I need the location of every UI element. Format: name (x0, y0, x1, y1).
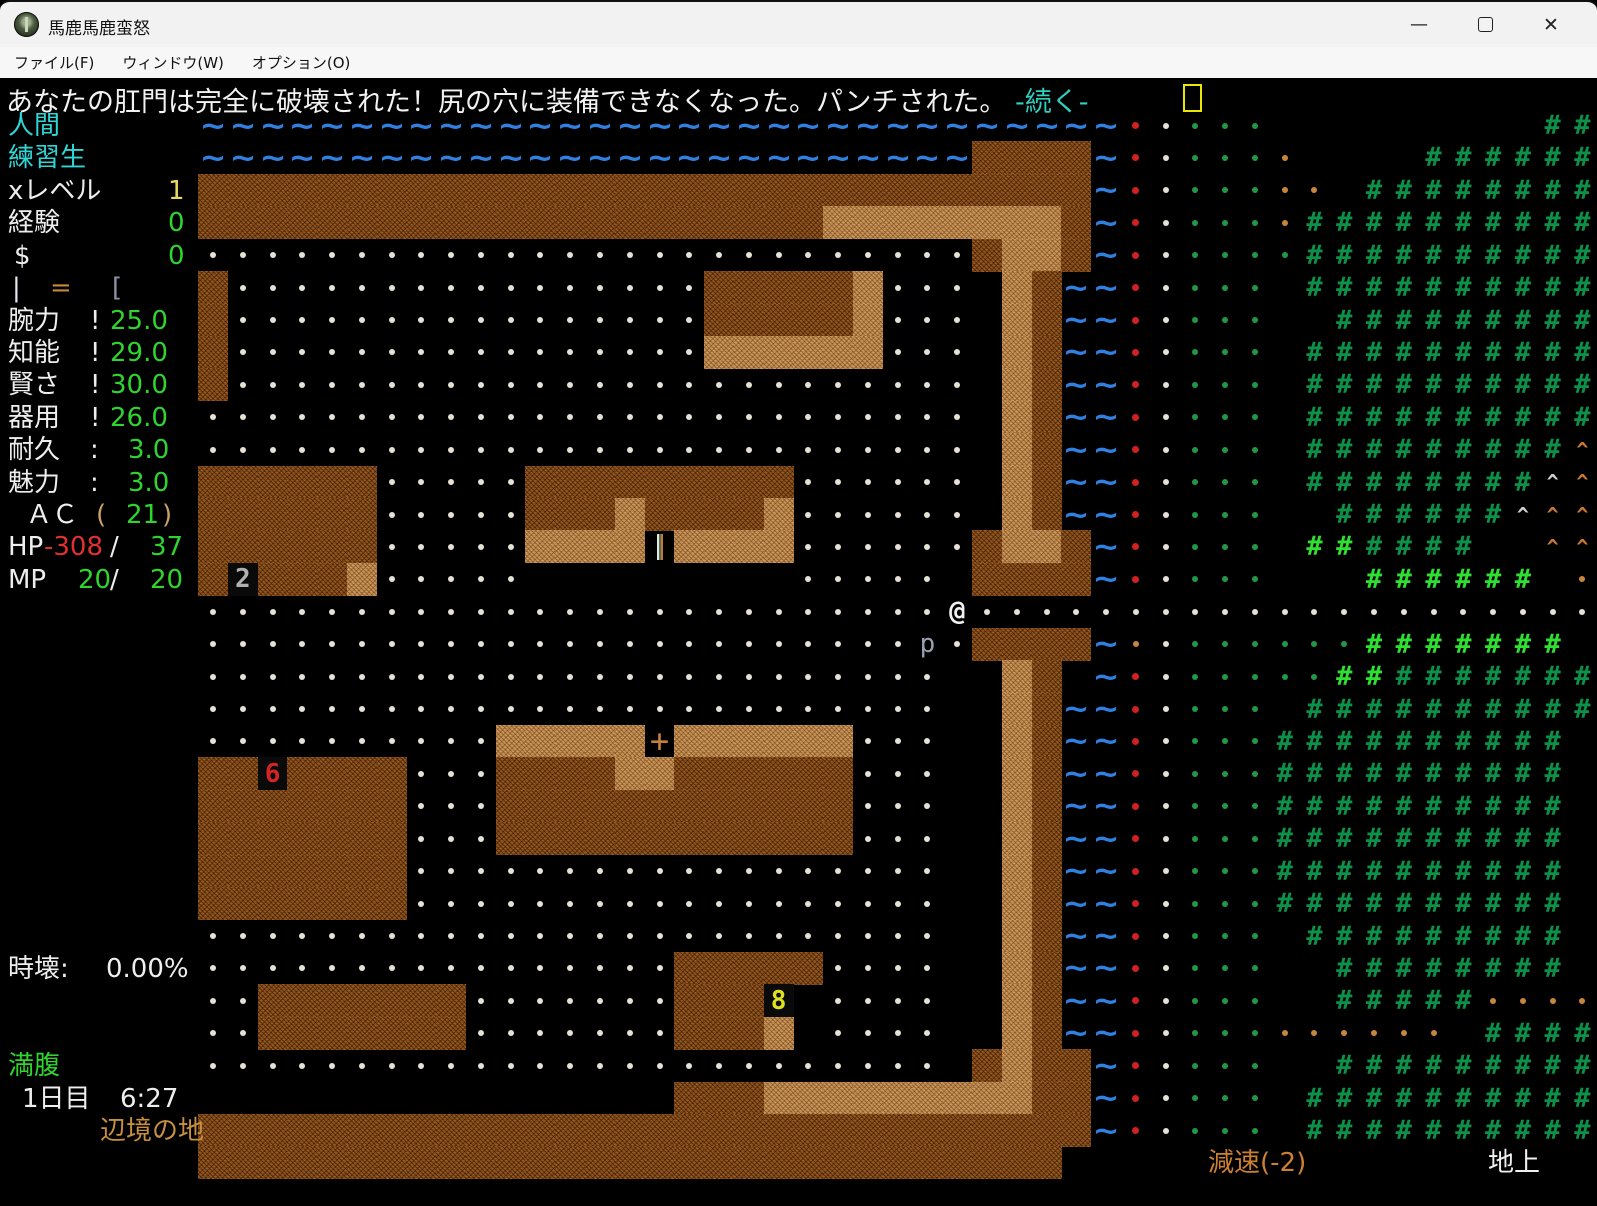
wall-dark-tile (317, 563, 347, 596)
floor-dot-mark (329, 965, 335, 971)
wall-dark-tile (1032, 1146, 1062, 1179)
wall-dark-tile (555, 1114, 585, 1147)
floor-dot-mark (270, 641, 276, 647)
floor-dot (317, 401, 347, 434)
maximize-button[interactable] (1452, 2, 1518, 47)
forest-tile: # (1299, 433, 1329, 466)
floor-dot-mark (448, 965, 454, 971)
floor-dot (496, 595, 526, 628)
wall-light-tile (1002, 757, 1032, 790)
wall-dark-tile (228, 822, 258, 855)
floor-dot-mark (1371, 609, 1377, 615)
forest-tile: # (1419, 952, 1449, 985)
wall-dark-tile (555, 206, 585, 239)
grass-dot (1240, 271, 1270, 304)
orange-dot (1508, 984, 1538, 1017)
forest-tile: # (1448, 1049, 1478, 1082)
floor-dot-mark (835, 382, 841, 388)
floor-dot (525, 628, 555, 661)
forest-tile: # (1567, 1082, 1597, 1115)
wall-light-tile (674, 725, 704, 758)
wall-light-tile (734, 725, 764, 758)
floor-dot-mark (537, 901, 543, 907)
floor-dot (853, 984, 883, 1017)
floor-dot-mark (210, 252, 216, 258)
wall-light-tile (823, 725, 853, 758)
grass-dot-mark (1192, 447, 1198, 453)
forest-tile: # (1508, 433, 1538, 466)
wall-dark-tile (198, 336, 228, 369)
floor-dot (496, 984, 526, 1017)
floor-dot-mark (924, 479, 930, 485)
wall-dark-tile (883, 1114, 913, 1147)
floor-dot-mark (1163, 1095, 1169, 1101)
forest-tile: # (1359, 920, 1389, 953)
forest-tile: # (1299, 887, 1329, 920)
floor-dot-mark (418, 901, 424, 907)
floor-dot (1329, 595, 1359, 628)
floor-dot (853, 239, 883, 272)
wall-dark-tile (674, 790, 704, 823)
wall-light-tile (615, 725, 645, 758)
str-line: ! (90, 306, 100, 336)
floor-dot (198, 984, 228, 1017)
water-tile: ~ (1087, 1082, 1125, 1115)
grass-dot (1180, 920, 1210, 953)
grass-dot (1240, 984, 1270, 1017)
red-dot (1121, 271, 1151, 304)
floor-dot-mark (805, 901, 811, 907)
floor-dot-mark (210, 1030, 216, 1036)
floor-dot (228, 920, 258, 953)
hp-line: HP (8, 532, 43, 562)
floor-dot-mark (657, 414, 663, 420)
orange-dot-mark (1133, 641, 1139, 647)
floor-dot-mark (835, 479, 841, 485)
floor-dot (198, 693, 228, 726)
floor-dot (1359, 595, 1389, 628)
forest-tile: # (1299, 693, 1329, 726)
floor-dot-mark (835, 901, 841, 907)
floor-dot-mark (1163, 738, 1169, 744)
forest-tile: # (1508, 401, 1538, 434)
floor-dot-mark (448, 706, 454, 712)
grass-dot-mark (1192, 220, 1198, 226)
grass-dot (1240, 693, 1270, 726)
wall-dark-tile (555, 822, 585, 855)
forest-tile: # (1329, 433, 1359, 466)
floor-dot (347, 239, 377, 272)
floor-dot-mark (954, 447, 960, 453)
menu-bar: ファイル(F) ウィンドウ(W) オプション(O) (0, 47, 1597, 78)
wall-dark-tile (525, 1114, 555, 1147)
wall-dark-tile (704, 757, 734, 790)
floor-dot-mark (448, 738, 454, 744)
floor-dot (764, 1049, 794, 1082)
grass-dot (1210, 628, 1240, 661)
red-dot-mark (1132, 154, 1139, 161)
floor-dot (645, 660, 675, 693)
floor-dot-mark (657, 933, 663, 939)
wall-dark-tile (645, 822, 675, 855)
floor-dot-mark (329, 933, 335, 939)
floor-dot-mark (567, 1030, 573, 1036)
floor-dot-mark (448, 447, 454, 453)
menu-options[interactable]: オプション(O) (238, 52, 365, 73)
floor-dot (436, 628, 466, 661)
forest-tile: # (1389, 1049, 1419, 1082)
floor-dot-mark (389, 382, 395, 388)
wall-dark-tile (674, 1017, 704, 1050)
door-plus: + (645, 725, 675, 758)
grass-dot-mark (1192, 1128, 1198, 1134)
floor-dot-mark (1311, 609, 1317, 615)
floor-dot (883, 530, 913, 563)
floor-dot (793, 530, 823, 563)
floor-dot-mark (1163, 901, 1169, 907)
floor-dot-mark (686, 901, 692, 907)
forest-tile: # (1389, 368, 1419, 401)
grass-dot-mark (1252, 868, 1258, 874)
wall-dark-tile (317, 530, 347, 563)
floor-dot (645, 595, 675, 628)
floor-dot (406, 433, 436, 466)
floor-dot-mark (567, 285, 573, 291)
floor-dot (942, 530, 972, 563)
wall-dark-tile (317, 1114, 347, 1147)
floor-dot (1121, 595, 1151, 628)
grass-dot-mark (1222, 803, 1228, 809)
wall-dark-tile (734, 984, 764, 1017)
floor-dot-mark (895, 317, 901, 323)
red-dot (1121, 1049, 1151, 1082)
floor-dot (436, 887, 466, 920)
floor-dot (912, 433, 942, 466)
grass-dot (1240, 206, 1270, 239)
floor-dot (793, 563, 823, 596)
wall-dark-tile (198, 368, 228, 401)
forest-tile: # (1359, 1114, 1389, 1147)
floor-dot-mark (329, 674, 335, 680)
forest-tile: # (1478, 271, 1508, 304)
floor-dot (1151, 401, 1181, 434)
floor-dot (853, 628, 883, 661)
floor-dot (258, 693, 288, 726)
forest-bright-tile: # (1299, 530, 1329, 563)
red-dot (1121, 757, 1151, 790)
floor-dot (1151, 563, 1181, 596)
orange-dot (1299, 1017, 1329, 1050)
floor-dot (823, 466, 853, 499)
floor-dot (823, 239, 853, 272)
floor-dot (555, 984, 585, 1017)
floor-dot-mark (746, 706, 752, 712)
floor-dot-mark (418, 285, 424, 291)
grass-dot (1180, 790, 1210, 823)
floor-dot-mark (686, 447, 692, 453)
floor-dot-mark (835, 998, 841, 1004)
floor-dot-mark (865, 674, 871, 680)
dex-line: 26.0 (110, 403, 168, 433)
floor-dot (228, 433, 258, 466)
floor-dot (436, 401, 466, 434)
floor-dot-mark (478, 447, 484, 453)
wall-dark-tile (585, 466, 615, 499)
floor-dot (883, 271, 913, 304)
wall-light-tile (615, 757, 645, 790)
grass-dot-mark (1252, 738, 1258, 744)
wall-dark-tile (317, 984, 347, 1017)
wall-dark-tile (198, 855, 228, 888)
floor-dot (585, 693, 615, 726)
floor-dot (466, 822, 496, 855)
mountain-caret: ^ (1567, 498, 1597, 531)
forest-tile: # (1389, 660, 1419, 693)
floor-dot (1478, 595, 1508, 628)
floor-dot-mark (240, 1063, 246, 1069)
floor-dot-mark (1163, 1030, 1169, 1036)
floor-dot (764, 368, 794, 401)
floor-dot-mark (240, 738, 246, 744)
floor-dot-mark (924, 706, 930, 712)
floor-dot-mark (716, 901, 722, 907)
floor-dot (1151, 660, 1181, 693)
grass-dot-mark (1252, 479, 1258, 485)
forest-tile: # (1389, 498, 1419, 531)
menu-window[interactable]: ウィンドウ(W) (108, 52, 238, 73)
wall-dark-tile (823, 757, 853, 790)
floor-dot (406, 822, 436, 855)
floor-dot-mark (835, 252, 841, 258)
floor-dot (347, 336, 377, 369)
floor-dot (287, 725, 317, 758)
floor-dot (377, 466, 407, 499)
floor-dot-mark (954, 512, 960, 518)
grass-dot-mark (1192, 349, 1198, 355)
floor-dot-mark (954, 479, 960, 485)
floor-dot-mark (329, 447, 335, 453)
floor-dot-mark (895, 414, 901, 420)
window-title: 馬鹿馬鹿蛮怒 (48, 14, 150, 39)
grass-dot (1180, 952, 1210, 985)
floor-dot (466, 1017, 496, 1050)
floor-dot-mark (359, 965, 365, 971)
floor-dot-mark (567, 706, 573, 712)
floor-dot-mark (1163, 998, 1169, 1004)
grass-dot (1180, 304, 1210, 337)
title-bar[interactable]: 馬鹿馬鹿蛮怒 — ✕ (0, 0, 1597, 47)
wall-dark-tile (764, 174, 794, 207)
grass-dot (1240, 790, 1270, 823)
floor-dot-mark (627, 706, 633, 712)
grass-dot-mark (1222, 641, 1228, 647)
mountain-caret: ^ (1567, 530, 1597, 563)
close-button[interactable]: ✕ (1518, 2, 1584, 47)
wall-dark-tile (674, 984, 704, 1017)
floor-dot (674, 368, 704, 401)
floor-dot (615, 1049, 645, 1082)
floor-dot (1151, 855, 1181, 888)
minimize-button[interactable]: — (1386, 2, 1452, 47)
wall-dark-tile (734, 271, 764, 304)
grass-dot (1240, 563, 1270, 596)
floor-dot-mark (418, 738, 424, 744)
floor-dot (496, 1049, 526, 1082)
floor-dot-mark (359, 285, 365, 291)
floor-dot-mark (210, 414, 216, 420)
grass-dot-mark (1222, 447, 1228, 453)
water-tile: ~ (1087, 757, 1125, 790)
floor-dot-mark (805, 933, 811, 939)
floor-dot-mark (924, 901, 930, 907)
floor-dot (853, 368, 883, 401)
water-tile: ~ (1087, 336, 1125, 369)
floor-dot (436, 466, 466, 499)
forest-tile: # (1538, 693, 1568, 726)
floor-dot-mark (924, 965, 930, 971)
water-tile: ~ (1087, 855, 1125, 888)
floor-dot (883, 498, 913, 531)
floor-dot-mark (210, 1063, 216, 1069)
grass-dot-mark (1252, 252, 1258, 258)
floor-dot (823, 498, 853, 531)
forest-tile: # (1389, 1114, 1419, 1147)
wall-light-tile (972, 206, 1002, 239)
floor-dot (377, 952, 407, 985)
floor-dot-mark (508, 317, 514, 323)
floor-dot (1151, 336, 1181, 369)
wall-light-tile (1002, 725, 1032, 758)
forest-tile: # (1359, 466, 1389, 499)
wall-dark-tile (287, 1114, 317, 1147)
con-line: 耐久 (8, 435, 60, 465)
floor-dot (823, 887, 853, 920)
floor-dot (525, 1049, 555, 1082)
wall-dark-tile (585, 1146, 615, 1179)
floor-dot-mark (418, 933, 424, 939)
floor-dot (228, 628, 258, 661)
floor-dot (674, 401, 704, 434)
floor-dot (496, 304, 526, 337)
wall-dark-tile (317, 1017, 347, 1050)
floor-dot-mark (865, 1030, 871, 1036)
floor-dot (883, 952, 913, 985)
floor-dot (1151, 304, 1181, 337)
forest-tile: # (1538, 433, 1568, 466)
floor-dot-mark (865, 382, 871, 388)
floor-dot (793, 855, 823, 888)
floor-dot-mark (627, 674, 633, 680)
floor-dot-mark (627, 641, 633, 647)
forest-tile: # (1419, 725, 1449, 758)
wall-dark-tile (555, 757, 585, 790)
floor-dot (377, 1049, 407, 1082)
floor-dot-mark (924, 544, 930, 550)
orange-dot-mark (1401, 1030, 1407, 1036)
floor-dot (823, 1049, 853, 1082)
floor-dot (615, 595, 645, 628)
wall-dark-tile (317, 1146, 347, 1179)
floor-dot (853, 855, 883, 888)
floor-dot (674, 433, 704, 466)
floor-dot (853, 498, 883, 531)
forest-tile: # (1389, 757, 1419, 790)
forest-tile: # (1538, 1082, 1568, 1115)
wall-dark-tile (764, 790, 794, 823)
floor-dot (258, 1049, 288, 1082)
floor-dot-mark (835, 1063, 841, 1069)
forest-tile: # (1478, 1082, 1508, 1115)
floor-dot (1002, 595, 1032, 628)
grass-dot-mark (1222, 1128, 1228, 1134)
grass-dot-mark (1252, 349, 1258, 355)
con-line: 3.0 (128, 435, 169, 465)
floor-dot-mark (389, 609, 395, 615)
grass-dot (1210, 887, 1240, 920)
floor-dot (287, 336, 317, 369)
floor-dot (674, 304, 704, 337)
floor-dot (228, 660, 258, 693)
floor-dot (853, 433, 883, 466)
floor-dot (317, 433, 347, 466)
floor-dot (555, 433, 585, 466)
floor-dot-mark (329, 641, 335, 647)
map-grid[interactable]: ~~~~~~~~~~~~~~~~~~~~~~~~~~~~~~~##~~~~~~~… (0, 78, 1597, 1206)
game-screen[interactable]: あなたの肛門は完全に破壊された！尻の穴に装備できなくなった。パンチされた。 -続… (0, 78, 1597, 1206)
grass-dot (1299, 660, 1329, 693)
wall-dark-tile (615, 174, 645, 207)
grass-dot (1210, 109, 1240, 142)
floor-dot-mark (895, 512, 901, 518)
floor-dot (853, 887, 883, 920)
floor-dot-mark (210, 447, 216, 453)
floor-dot-mark (389, 1063, 395, 1069)
forest-tile: # (1419, 660, 1449, 693)
floor-dot (406, 952, 436, 985)
forest-tile: # (1419, 822, 1449, 855)
grass-dot-mark (1222, 220, 1228, 226)
floor-dot (406, 271, 436, 304)
floor-dot (466, 466, 496, 499)
floor-dot (198, 920, 228, 953)
wall-dark-tile (317, 498, 347, 531)
floor-dot (704, 433, 734, 466)
wall-dark-tile (734, 822, 764, 855)
floor-dot (406, 693, 436, 726)
floor-dot-mark (835, 576, 841, 582)
floor-dot-mark (478, 544, 484, 550)
grass-dot-mark (1252, 965, 1258, 971)
floor-dot-mark (418, 252, 424, 258)
grass-dot (1180, 757, 1210, 790)
floor-dot-mark (270, 933, 276, 939)
floor-dot (942, 336, 972, 369)
floor-dot-mark (686, 414, 692, 420)
grass-dot (1180, 141, 1210, 174)
floor-dot (466, 952, 496, 985)
floor-dot-mark (776, 933, 782, 939)
floor-dot-mark (418, 965, 424, 971)
wall-dark-tile (764, 1114, 794, 1147)
floor-dot-mark (776, 1063, 782, 1069)
forest-bright-tile: # (1359, 660, 1389, 693)
grass-dot (1240, 530, 1270, 563)
wall-dark-tile (287, 822, 317, 855)
wall-dark-tile (555, 466, 585, 499)
floor-dot-mark (389, 414, 395, 420)
menu-file[interactable]: ファイル(F) (0, 52, 108, 73)
wall-light-tile (734, 336, 764, 369)
